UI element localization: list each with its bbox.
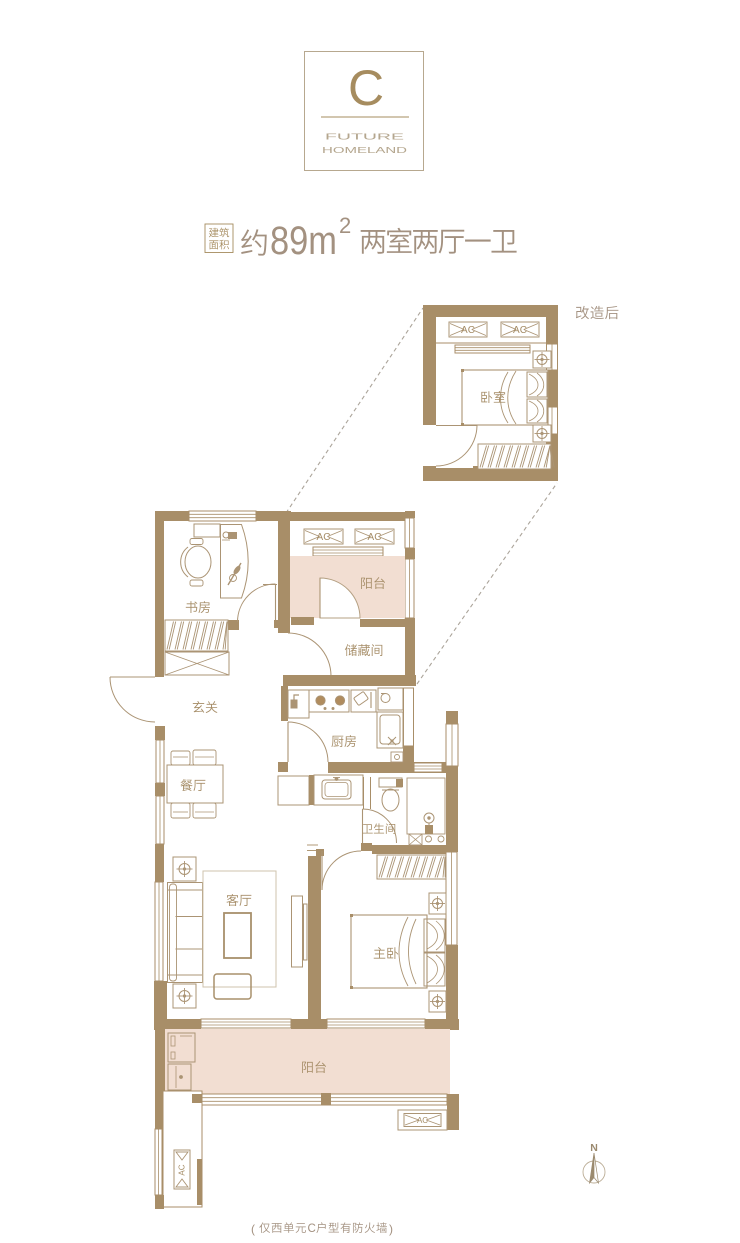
svg-text:): ): [389, 1222, 393, 1236]
svg-text:HOMELAND: HOMELAND: [322, 145, 407, 155]
svg-text:AC: AC: [368, 532, 382, 543]
svg-text:C: C: [348, 60, 384, 116]
svg-text:AC: AC: [317, 532, 331, 543]
svg-text:N: N: [590, 1142, 598, 1154]
svg-text:AC: AC: [178, 1164, 187, 1175]
svg-text:AC: AC: [513, 325, 527, 336]
svg-text:89m: 89m: [270, 219, 337, 263]
svg-text:C: C: [308, 1223, 316, 1235]
svg-text:2: 2: [339, 213, 351, 238]
svg-text:(: (: [251, 1222, 255, 1236]
svg-text:AC: AC: [417, 1116, 428, 1125]
svg-text:FUTURE: FUTURE: [325, 132, 405, 142]
svg-text:AC: AC: [461, 325, 475, 336]
